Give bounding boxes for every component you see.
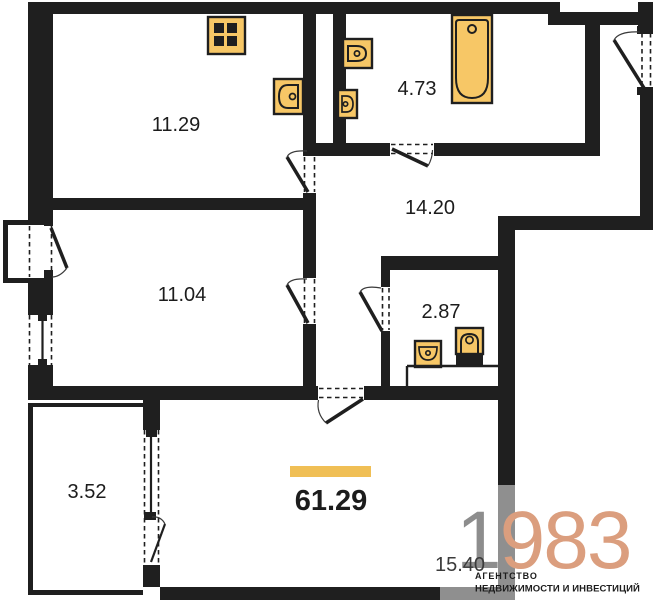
bedroom-door	[287, 279, 315, 323]
wc-toilet-icon	[456, 328, 483, 367]
toilet-icon	[333, 39, 372, 68]
kitchen-door	[287, 151, 315, 192]
total-area-bar	[290, 466, 371, 477]
wc-door	[360, 287, 389, 331]
bathtub-icon	[452, 15, 492, 103]
floor-plan: 11.29 4.73 14.20 11.04 2.87 3.52 61.29 1…	[0, 0, 653, 600]
washbasin-icon	[338, 90, 357, 118]
wc-sink-icon	[415, 341, 441, 367]
kitchen-area-label: 11.29	[152, 114, 201, 136]
hallway-area-label: 14.20	[405, 197, 455, 219]
bathroom-door	[391, 145, 433, 167]
bedroom-window	[30, 314, 52, 366]
balcony-door-bedroom	[30, 218, 68, 278]
balcony-window-and-door	[144, 429, 165, 565]
floor-plan-canvas: 11.29 4.73 14.20 11.04 2.87 3.52 61.29 1…	[0, 0, 653, 600]
stove-icon	[208, 17, 245, 54]
watermark-caption-line2: НЕДВИЖИМОСТИ И ИНВЕСТИЦИЙ	[475, 583, 640, 595]
bedroom-area-label: 11.04	[158, 284, 207, 306]
wc-area-label: 2.87	[422, 301, 461, 323]
living-room-area-label: 15.40	[435, 554, 485, 576]
room-labels: 11.29 4.73 14.20 11.04 2.87 3.52	[68, 78, 461, 503]
balcony-area-label: 3.52	[68, 481, 107, 503]
watermark: 1983 АГЕНТСТВО НЕДВИЖИМОСТИ И ИНВЕСТИЦИЙ	[440, 485, 653, 600]
kitchen-sink-icon	[274, 79, 303, 114]
total-area: 61.29	[290, 466, 371, 517]
entrance-door	[614, 32, 651, 88]
total-area-value: 61.29	[295, 485, 368, 517]
wc-counter	[407, 366, 498, 388]
living-room-door	[318, 389, 363, 424]
bathroom-area-label: 4.73	[398, 78, 437, 100]
